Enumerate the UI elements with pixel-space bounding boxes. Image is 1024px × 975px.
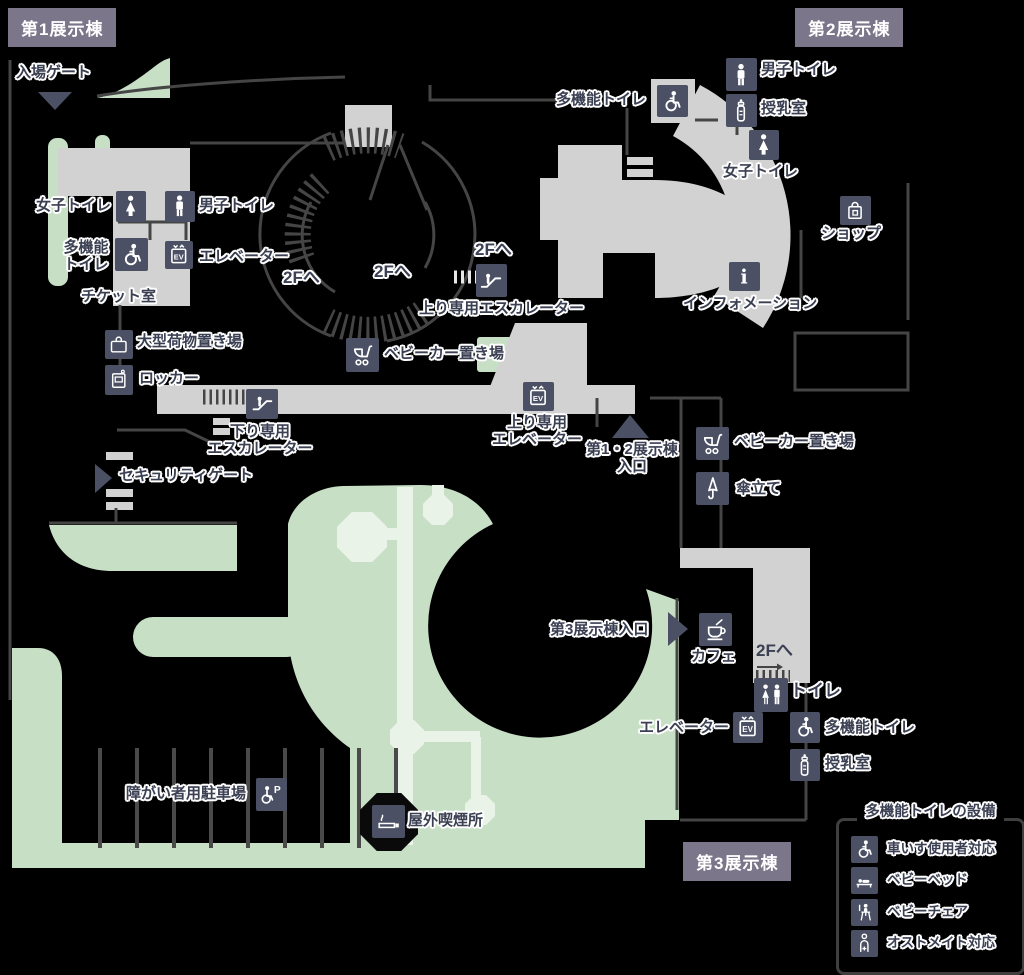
woman-icon [749,130,779,160]
luggage-icon [105,330,133,359]
woman-icon [116,191,146,222]
legend-item-babychair: ベビーチェア [887,904,968,920]
locker-icon [105,365,133,395]
label-mens-toilet: 男子トイレ [761,61,836,78]
label-hall12-entrance: 第1・2展示棟 入口 [577,441,687,476]
label-smoking-area: 屋外喫煙所 [408,812,483,829]
wheelchair-icon [115,238,148,271]
label-nursing-room: 授乳室 [761,100,806,117]
umbrella-icon [696,472,729,505]
label-multi-toilet: 多機能トイレ [556,91,646,108]
label-shop: ショップ [821,225,881,242]
badge-hall1: 第1展示棟 [8,8,116,47]
elevator-icon [523,382,554,411]
label-multi-toilet: 多機能 トイレ [58,239,114,274]
label-umbrella-stand: 傘立て [736,480,781,497]
escalator-down-icon [246,389,278,419]
security-gate-marker [95,464,112,493]
entrance-gate-marker [38,92,72,110]
label-elevator: エレベーター [199,248,289,265]
floor-map: EV i [0,0,1024,975]
coffee-cup-icon [699,613,732,646]
label-cafe: カフェ [691,648,736,665]
label-to-2f: 2Fへ [475,240,512,260]
man-icon [165,191,195,222]
label-security-gate: セキュリティゲート [119,467,253,484]
label-stroller-area: ベビーカー置き場 [734,433,854,450]
toilets-pair-icon [754,678,788,712]
legend-title-text: 多機能トイレの設備 [857,804,1004,821]
label-toilet: トイレ [790,681,841,701]
man-icon [726,58,757,91]
label-hall3-entrance: 第3展示棟入口 [550,621,648,638]
badge-hall3: 第3展示棟 [683,842,791,881]
information-icon [729,262,760,291]
label-womens-toilet: 女子トイレ [36,197,111,214]
wheelchair-icon [851,836,878,863]
ostomate-icon [851,930,878,957]
label-ticket-room: チケット室 [81,288,156,305]
label-up-escalator: 上り専用エスカレーター [419,300,584,317]
label-mens-toilet: 男子トイレ [199,197,274,214]
legend-title: 多機能トイレの設備 [836,804,1024,821]
label-down-escalator: 下り専用 エスカレーター [200,423,320,458]
stroller-icon [696,427,729,460]
shopping-bag-icon [840,196,871,225]
wheelchair-icon [657,85,688,117]
label-luggage-area: 大型荷物置き場 [137,333,242,350]
elevator-icon [733,712,763,743]
baby-bed-icon [851,867,878,894]
label-disabled-parking: 障がい者用駐車場 [126,785,246,802]
label-womens-toilet: 女子トイレ [723,163,798,180]
legend-item-ostomate: オストメイト対応 [887,935,995,951]
label-stroller-area: ベビーカー置き場 [384,345,504,362]
baby-bottle-icon [726,94,757,127]
hall12-entrance-marker [612,415,649,438]
label-locker: ロッカー [139,370,199,387]
label-to-2f: 2Fへ [756,641,793,661]
legend-item-wheelchair: 車いす使用者対応 [887,841,995,857]
label-information: インフォメーション [683,295,817,312]
wheelchair-parking-icon [256,778,287,811]
legend-item-babybed: ベビーベッド [887,872,968,888]
escalator-up-icon [476,264,507,297]
label-entrance-gate: 入場ゲート [16,64,91,81]
baby-bottle-icon [790,749,820,781]
label-to-2f: 2Fへ [283,268,320,288]
label-nursing-room: 授乳室 [825,755,870,772]
wheelchair-icon [790,712,820,743]
cigarette-icon [372,805,405,838]
badge-hall2: 第2展示棟 [795,8,903,47]
baby-chair-icon [851,899,878,926]
label-to-2f: 2Fへ [374,262,411,282]
label-up-elevator: 上り専用 エレベーター [482,414,592,449]
label-multi-toilet: 多機能トイレ [825,719,915,736]
elevator-icon [165,241,193,269]
stroller-icon [346,338,379,372]
label-elevator: エレベーター [639,719,729,736]
